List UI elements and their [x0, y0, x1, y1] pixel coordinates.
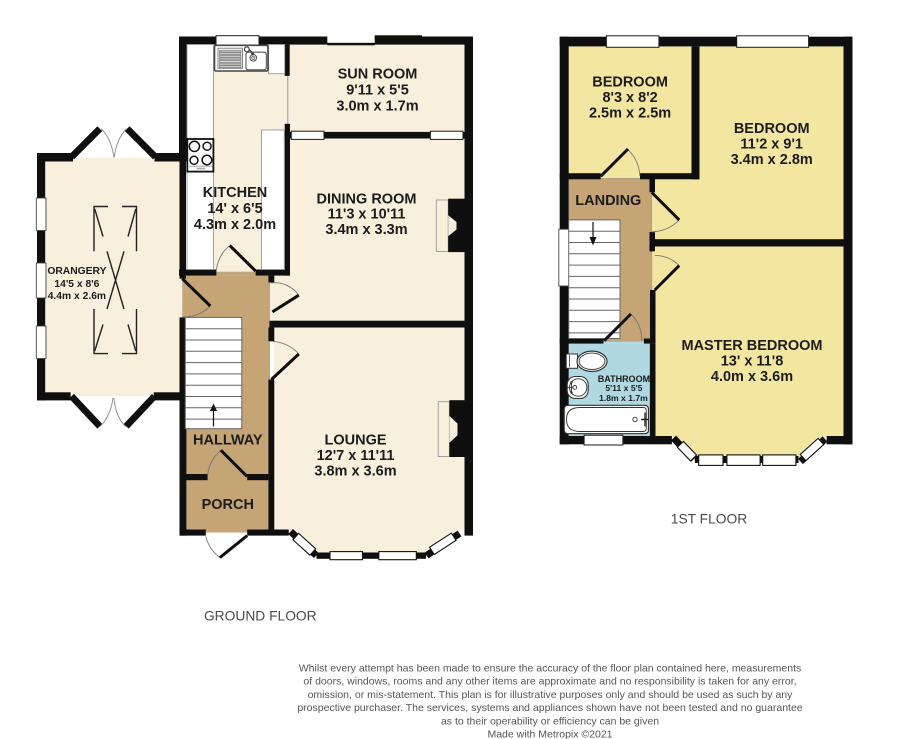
- svg-text:LANDING: LANDING: [575, 193, 641, 209]
- svg-text:SUN ROOM: SUN ROOM: [338, 67, 418, 83]
- svg-text:12'7 x 11'11: 12'7 x 11'11: [317, 448, 395, 464]
- svg-text:Whilst every attempt has been: Whilst every attempt has been made to en…: [299, 663, 802, 675]
- svg-text:3.4m x 2.8m: 3.4m x 2.8m: [731, 152, 813, 168]
- svg-text:4.3m x 2.0m: 4.3m x 2.0m: [194, 217, 276, 233]
- svg-text:11'3 x 10'11: 11'3 x 10'11: [328, 207, 406, 223]
- svg-text:14' x 6'5: 14' x 6'5: [207, 201, 262, 217]
- svg-text:LOUNGE: LOUNGE: [324, 433, 386, 449]
- svg-text:ORANGERY: ORANGERY: [47, 266, 106, 277]
- svg-text:13' x 11'8: 13' x 11'8: [721, 354, 784, 370]
- svg-text:2.5m x 2.5m: 2.5m x 2.5m: [589, 106, 671, 122]
- svg-text:3.8m x 3.6m: 3.8m x 3.6m: [314, 464, 396, 480]
- svg-text:8'3 x 8'2: 8'3 x 8'2: [602, 90, 657, 106]
- svg-text:1.8m x 1.7m: 1.8m x 1.7m: [599, 393, 648, 403]
- svg-text:of doors, windows, rooms and a: of doors, windows, rooms and any other i…: [303, 676, 796, 688]
- svg-text:Made with Metropix ©2021: Made with Metropix ©2021: [487, 729, 612, 739]
- svg-text:1ST FLOOR: 1ST FLOOR: [671, 512, 747, 527]
- svg-text:MASTER BEDROOM: MASTER BEDROOM: [682, 338, 823, 354]
- svg-text:HALLWAY: HALLWAY: [193, 433, 263, 449]
- svg-text:DINING ROOM: DINING ROOM: [317, 192, 417, 208]
- svg-text:BEDROOM: BEDROOM: [734, 121, 810, 137]
- svg-text:9'11 x 5'5: 9'11 x 5'5: [346, 83, 409, 99]
- svg-text:14'5 x 8'6: 14'5 x 8'6: [54, 279, 99, 290]
- svg-text:prospective purchaser. The ser: prospective purchaser. The services, sys…: [297, 702, 802, 714]
- svg-text:3.0m x 1.7m: 3.0m x 1.7m: [336, 99, 418, 115]
- svg-text:omission, or mis-statement. Th: omission, or mis-statement. This plan is…: [308, 689, 794, 701]
- svg-text:5'11 x 5'5: 5'11 x 5'5: [605, 383, 642, 393]
- svg-text:11'2 x 9'1: 11'2 x 9'1: [740, 137, 803, 153]
- svg-text:PORCH: PORCH: [202, 497, 254, 513]
- svg-text:GROUND FLOOR: GROUND FLOOR: [204, 609, 317, 624]
- svg-text:as to their operability or eff: as to their operability or efficiency ca…: [441, 715, 659, 727]
- svg-text:4.0m x 3.6m: 4.0m x 3.6m: [711, 369, 793, 385]
- svg-text:KITCHEN: KITCHEN: [203, 185, 267, 201]
- svg-text:3.4m x 3.3m: 3.4m x 3.3m: [325, 222, 407, 238]
- svg-text:BEDROOM: BEDROOM: [592, 75, 668, 91]
- svg-text:4.4m x 2.6m: 4.4m x 2.6m: [48, 291, 106, 302]
